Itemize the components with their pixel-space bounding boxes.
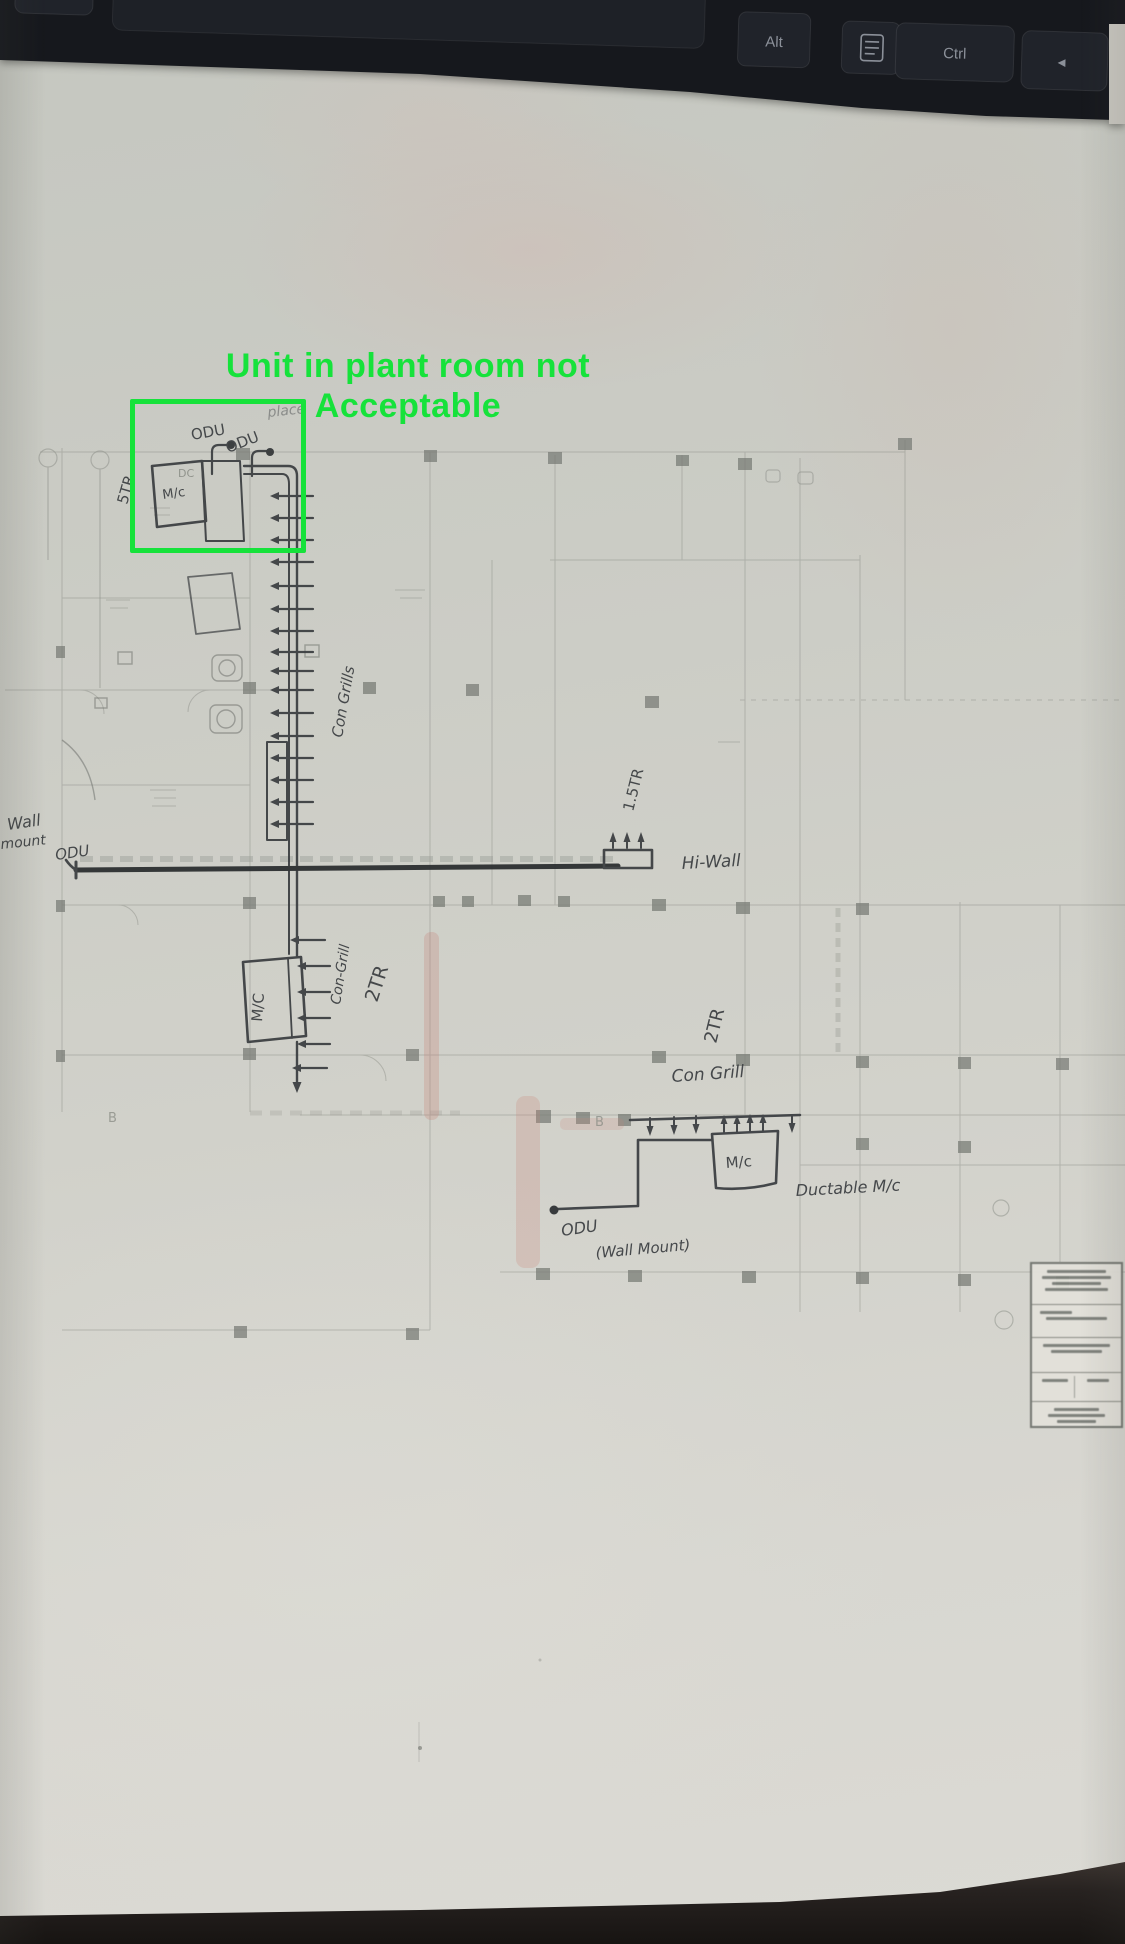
reviewer-note-line2: Acceptable — [210, 386, 606, 426]
key-alt-left: Alt — [15, 0, 95, 15]
svg-text:Alt: Alt — [45, 0, 64, 3]
reviewer-note: Unit in plant room not Acceptable — [210, 346, 606, 426]
hi-wall-label: Hi-Wall — [681, 851, 741, 874]
svg-text:Alt: Alt — [765, 33, 784, 51]
printed-columns — [56, 438, 1069, 1340]
desk-edge — [0, 1854, 1125, 1944]
svg-text:Ctrl: Ctrl — [943, 45, 967, 63]
grid-letter-b-left: B — [108, 1111, 117, 1126]
keyboard-edge: Alt Alt Ctrl ◄ — [0, 0, 1125, 135]
paper-specks — [418, 1659, 542, 1763]
main-pipe-run-drawing — [66, 832, 652, 878]
lower-odu-mount: (Wall Mount) — [595, 1236, 691, 1262]
printed-grid-lines — [5, 440, 1125, 1330]
svg-text:◄: ◄ — [1055, 55, 1068, 70]
lower-capacity: 2TR — [700, 1006, 729, 1045]
reviewer-note-line1: Unit in plant room not — [210, 346, 606, 386]
key-arrow-left: ◄ — [1021, 31, 1109, 92]
title-block — [1030, 1262, 1123, 1428]
lower-grill-label: Con Grill — [671, 1062, 745, 1087]
photo-of-floor-plan: DC B B — [0, 0, 1125, 1944]
hi-wall-capacity: 1.5TR — [619, 766, 647, 813]
title-block-row — [1032, 1373, 1121, 1402]
upper-grill-label: Con Grills — [328, 664, 358, 738]
title-block-row — [1032, 1402, 1121, 1434]
title-block-row — [1032, 1338, 1121, 1373]
grid-letter-b-mid: B — [595, 1115, 604, 1130]
mid-grill-label: Con-Grill — [328, 943, 353, 1005]
ductable-label: Ductable M/c — [795, 1176, 901, 1200]
title-block-row — [1032, 1305, 1121, 1338]
title-block-row — [1032, 1264, 1121, 1305]
key-alt-right: Alt — [737, 12, 811, 68]
desk-strip-right — [1109, 24, 1125, 124]
mid-capacity: 2TR — [361, 963, 393, 1005]
key-ctrl: Ctrl — [895, 23, 1015, 83]
lower-unit-label: M/c — [725, 1152, 752, 1172]
wall-mount-word1: Wall — [6, 810, 43, 834]
mid-unit-label: M/C — [248, 993, 268, 1023]
lower-odu-label: ODU — [560, 1216, 599, 1240]
wall-mount-word2: mount — [0, 832, 47, 853]
key-menu — [841, 21, 901, 75]
floor-plan-drawing: DC B B — [0, 0, 1125, 1944]
printed-labels: DC B B — [108, 467, 604, 1130]
